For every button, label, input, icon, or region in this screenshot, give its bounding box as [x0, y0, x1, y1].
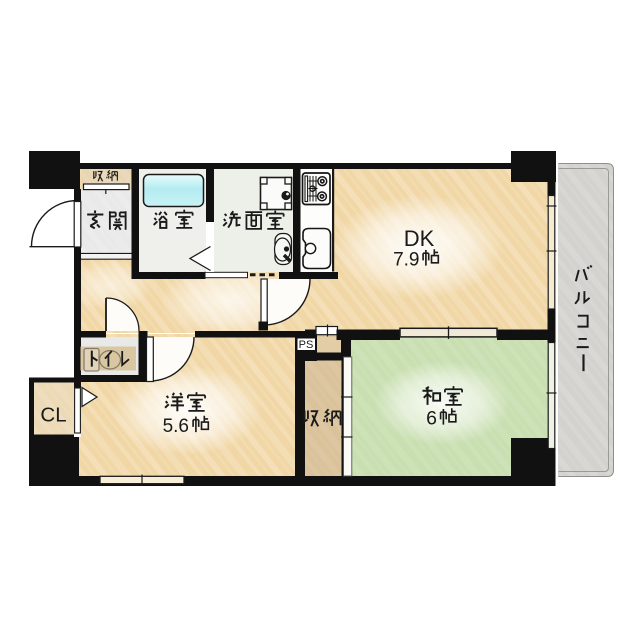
svg-text:7.9: 7.9: [393, 250, 419, 271]
svg-text:DK: DK: [404, 226, 435, 251]
svg-text:6: 6: [426, 408, 437, 430]
svg-text:5.6: 5.6: [163, 416, 189, 437]
svg-text:CL: CL: [40, 404, 66, 427]
svg-text:PS: PS: [299, 339, 314, 351]
